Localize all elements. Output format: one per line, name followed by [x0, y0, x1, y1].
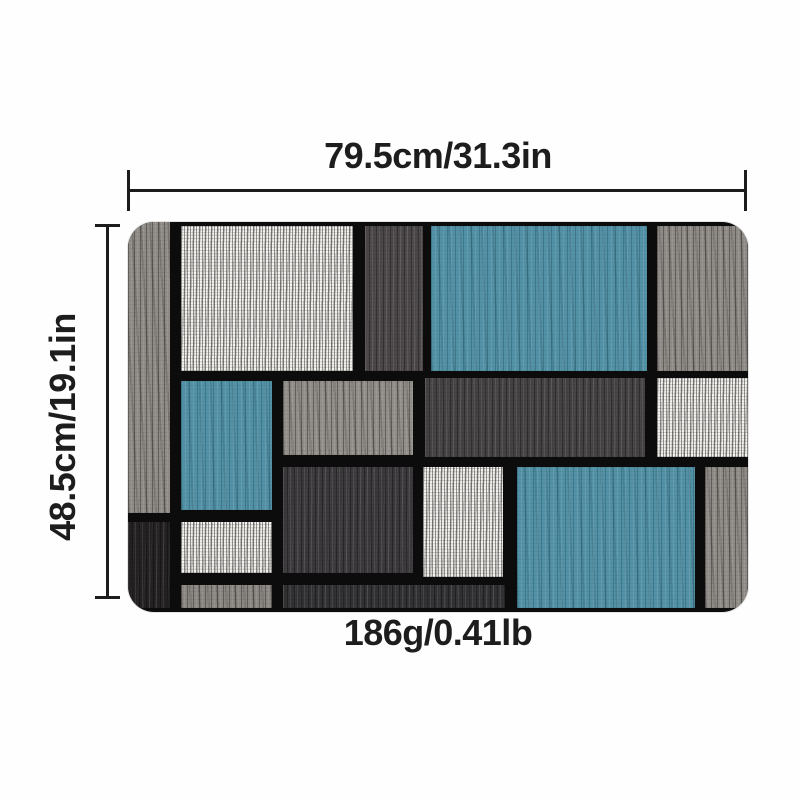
mat-region-dark-strip-bottom	[283, 585, 505, 608]
mat-region-gray-bottom-right	[705, 467, 748, 608]
height-dimension-label: 48.5cm/19.1in	[41, 212, 85, 642]
height-dimension-line	[106, 225, 109, 598]
mat-region-gray-mid	[283, 381, 413, 455]
mat-region-blue-big-bottom	[517, 467, 695, 608]
mat-region-darkgray-top	[365, 226, 423, 371]
width-dimension-tick-right	[744, 170, 747, 211]
mat-region-dark-mid	[283, 467, 413, 573]
mat-region-gray-strip-bottom-left	[181, 585, 272, 608]
width-dimension-label: 79.5cm/31.3in	[128, 134, 748, 178]
weight-label: 186g/0.41lb	[128, 611, 748, 655]
product-mat	[128, 222, 748, 612]
mat-region-white-top	[181, 226, 353, 371]
mat-region-left-column-gray	[128, 222, 170, 513]
mat-region-dark-big-mid	[425, 378, 645, 457]
mat-region-left-column-black	[128, 522, 170, 608]
height-dimension-tick-top	[95, 224, 120, 227]
width-dimension-line	[128, 189, 747, 192]
mat-region-white-bottom-left	[181, 522, 272, 573]
width-dimension-tick-left	[127, 170, 130, 211]
height-dimension-tick-bottom	[95, 596, 120, 599]
mat-region-white-mid-right	[657, 378, 748, 457]
mat-region-gray-top-right	[657, 226, 748, 371]
mat-region-blue-mid-left	[181, 381, 272, 510]
mat-region-white-mid-center	[423, 467, 503, 577]
mat-region-blue-top	[431, 226, 647, 371]
product-dimension-image: 79.5cm/31.3in 48.5cm/19.1in 186g/0.41lb	[0, 0, 800, 800]
